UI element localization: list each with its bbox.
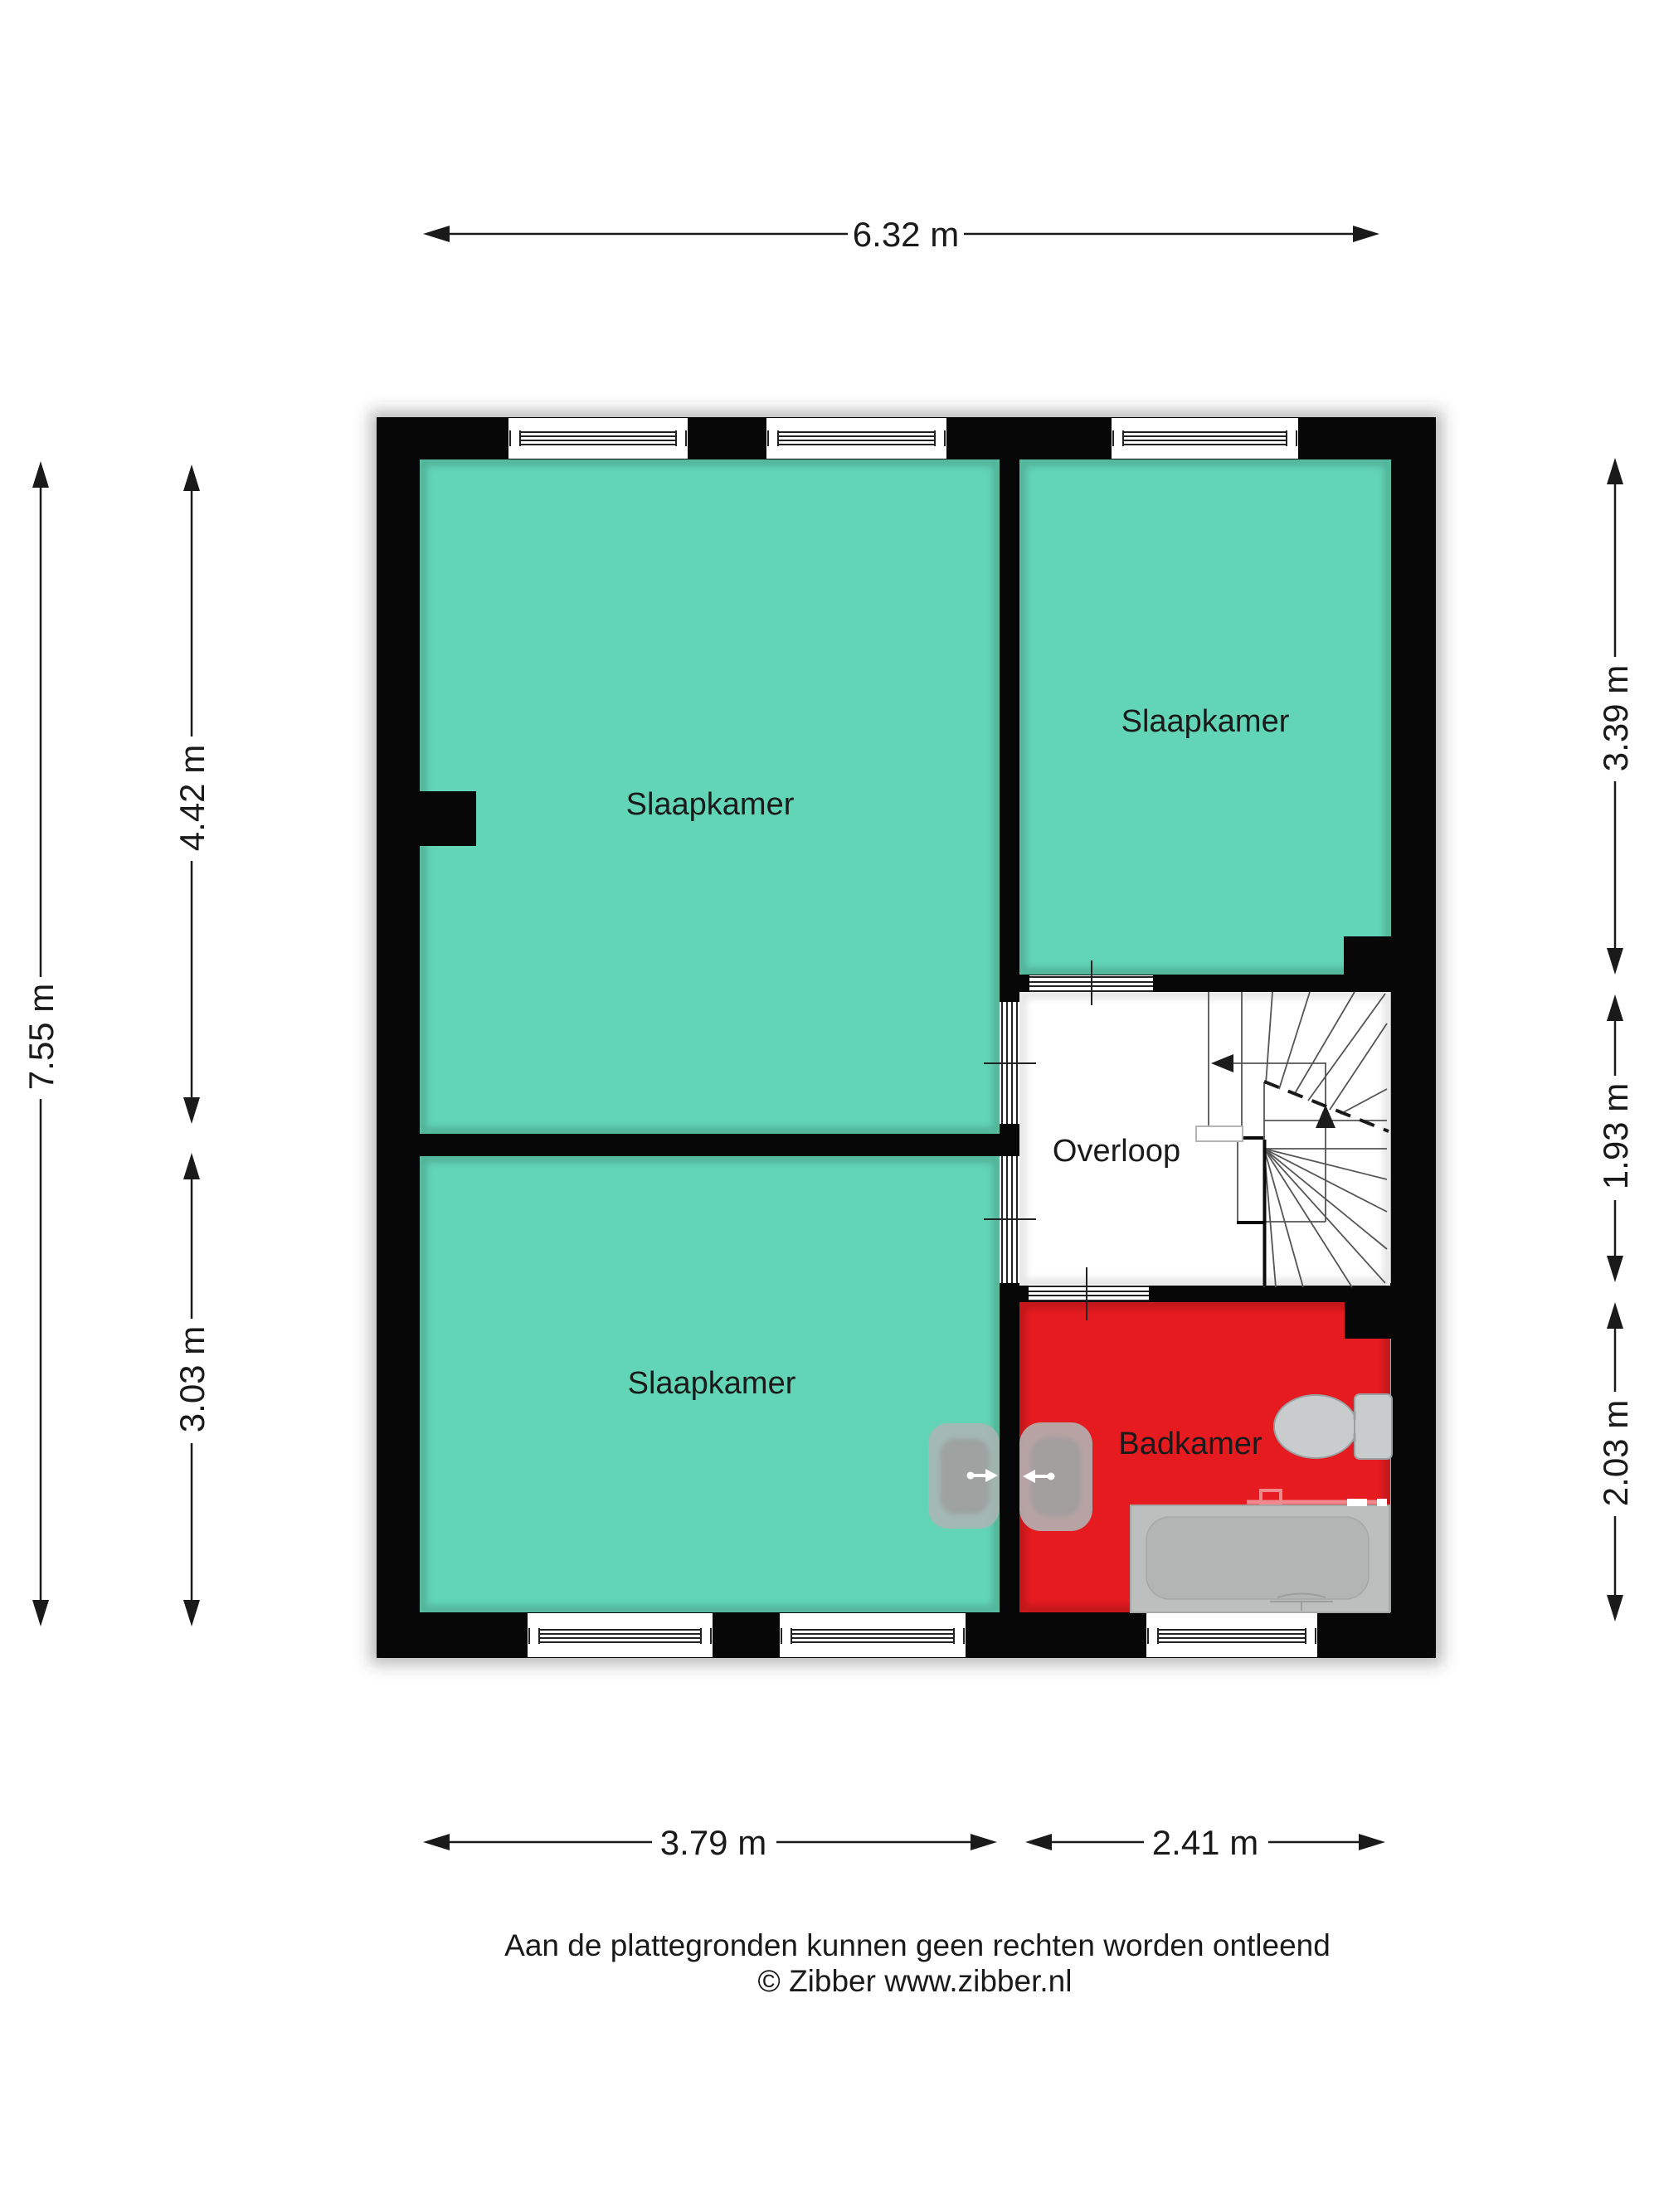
svg-text:Aan de plattegronden kunnen ge: Aan de plattegronden kunnen geen rechten… xyxy=(504,1928,1331,1962)
svg-text:Slaapkamer: Slaapkamer xyxy=(1121,704,1290,739)
svg-text:6.32 m: 6.32 m xyxy=(853,215,959,254)
svg-text:Overloop: Overloop xyxy=(1053,1134,1180,1169)
svg-text:© Zibber www.zibber.nl: © Zibber www.zibber.nl xyxy=(758,1964,1073,1998)
svg-text:2.41 m: 2.41 m xyxy=(1152,1823,1258,1862)
svg-text:3.39 m: 3.39 m xyxy=(1596,665,1635,771)
svg-text:Slaapkamer: Slaapkamer xyxy=(628,1366,796,1401)
svg-text:1.93 m: 1.93 m xyxy=(1596,1083,1635,1189)
svg-text:2.03 m: 2.03 m xyxy=(1596,1400,1635,1506)
svg-text:Slaapkamer: Slaapkamer xyxy=(626,787,795,822)
svg-text:Badkamer: Badkamer xyxy=(1118,1427,1262,1461)
svg-text:3.79 m: 3.79 m xyxy=(660,1823,766,1862)
svg-text:4.42 m: 4.42 m xyxy=(173,745,212,851)
svg-text:3.03 m: 3.03 m xyxy=(173,1326,212,1432)
svg-text:7.55 m: 7.55 m xyxy=(22,984,61,1090)
